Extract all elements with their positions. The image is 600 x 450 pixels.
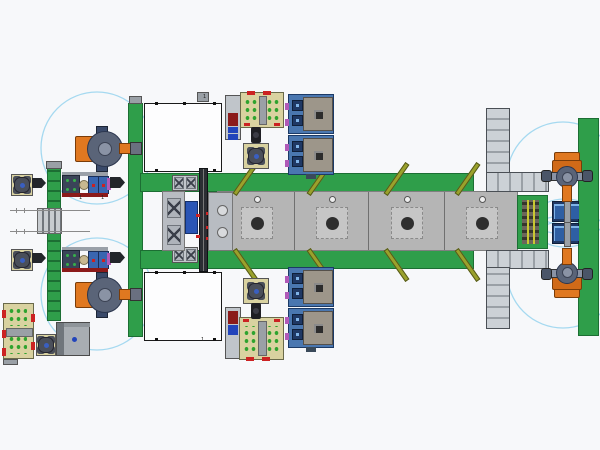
machine-enclosure-bottom: [144, 272, 222, 341]
robot-wrist-core: [98, 288, 112, 302]
machine-connector: [285, 119, 289, 126]
station-fixture-block: [62, 175, 80, 195]
bed-pin: [329, 196, 336, 203]
station-plate-1: [241, 207, 273, 239]
tray-red-tab: [246, 357, 254, 361]
part-nest-grid: [266, 326, 280, 353]
machine-port: [292, 273, 303, 284]
pallet-wheel: [186, 249, 196, 261]
magazine-guide-rail: [533, 200, 535, 244]
transfer-wheel: [167, 198, 181, 218]
machine-port: [292, 156, 303, 167]
tray-footer: [3, 359, 18, 365]
index-disc: [217, 227, 228, 238]
tray-red-tab: [2, 330, 6, 338]
robot-joint: [556, 262, 578, 284]
rotary-actuator: [248, 148, 264, 164]
robot-right-bottom: [546, 250, 586, 298]
rotary-center: [44, 343, 49, 348]
process-machine-2: [288, 135, 334, 175]
tray-red-tab: [31, 314, 35, 322]
rotary-fixture-left-top: [11, 174, 33, 196]
machine-panel: [303, 138, 333, 172]
station-fixture-block: [62, 250, 80, 270]
cad-layout-canvas: 1 1 1 1: [0, 0, 600, 450]
rotary-center: [254, 289, 259, 294]
index-disc: [217, 205, 228, 216]
tray-red-tab: [262, 357, 270, 361]
machine-panel: [303, 97, 333, 131]
rotary-actuator: [248, 283, 264, 299]
pallet-stop-unit-top: [172, 175, 198, 191]
machine-connector: [285, 160, 289, 167]
cabinet-blue-panel: [228, 134, 238, 140]
vertical-ladder-conveyor-left: [47, 163, 61, 321]
tray-red-tab: [243, 319, 249, 322]
dimension-line: [10, 231, 90, 232]
fixture-jaw: [554, 226, 564, 241]
tray-red-tab: [2, 310, 6, 318]
bed-pin: [479, 196, 486, 203]
tray-red-tab: [2, 348, 6, 356]
process-machine-3: [288, 267, 334, 307]
control-cabinet-top: [225, 95, 241, 140]
balloon-label: 1: [201, 338, 204, 343]
tray-red-tab: [274, 319, 280, 322]
rotary-actuator: [14, 252, 30, 268]
roller-conveyor-vertical-bottom: [486, 267, 510, 329]
enclosure-mount-marks: [155, 102, 158, 105]
robot-arm-end: [541, 170, 552, 182]
magazine-slots: [522, 200, 539, 244]
tray-red-tab: [31, 342, 35, 350]
station-bore: [401, 217, 414, 230]
tray-center-bracket: [259, 96, 268, 125]
tooling-fixture-top: [552, 201, 579, 222]
clamp-pad: [92, 184, 95, 187]
machine-foot: [306, 347, 316, 352]
station-plate-4: [466, 207, 498, 239]
part-nest-grid: [8, 307, 27, 325]
machine-connector: [285, 103, 289, 110]
machine-spindle: [314, 151, 323, 160]
rotary-fixture-top-center: [243, 143, 269, 169]
machine-port: [292, 329, 303, 340]
bed-pin: [404, 196, 411, 203]
rotary-actuator: [38, 337, 54, 353]
process-machine-1: [288, 94, 334, 134]
magazine-rack: [517, 195, 548, 249]
rotary-actuator: [14, 177, 30, 193]
tray-red-tab: [274, 123, 280, 126]
bed-section-divider: [294, 192, 295, 250]
kitting-tray-vertical: [3, 303, 34, 359]
robot-joint: [87, 131, 123, 167]
machine-connector: [285, 276, 289, 283]
bed-section-divider: [368, 192, 369, 250]
part-nest-grid: [243, 326, 257, 353]
tray-red-tab: [247, 91, 255, 95]
machine-port: [292, 288, 303, 299]
transfer-frame: [162, 191, 185, 251]
robot-forearm: [562, 248, 572, 265]
magazine-guide-rail: [527, 200, 529, 244]
machine-port: [292, 100, 303, 111]
roller-conveyor-horizontal-top: [486, 172, 549, 192]
robot-arm-end: [582, 170, 593, 182]
part-nest-grid: [266, 98, 280, 120]
machine-panel: [303, 311, 333, 345]
rotary-center: [254, 154, 259, 159]
bed-pin: [254, 196, 261, 203]
locator-pins: [66, 179, 69, 182]
rail-clamp: [196, 235, 200, 238]
machine-connector: [285, 333, 289, 340]
assembly-station-left-bottom: [62, 247, 111, 273]
kitting-tray-top: [240, 92, 284, 128]
robot-gripper: [130, 288, 142, 301]
robot-wrist-core: [98, 142, 112, 156]
enclosure-mount-marks: [155, 271, 158, 274]
clamp-pad: [102, 259, 105, 262]
machine-port: [292, 115, 303, 126]
locator-pins: [66, 254, 69, 257]
station-bore: [326, 217, 339, 230]
gantry-rail: [199, 168, 208, 272]
clamp-pad: [92, 259, 95, 262]
cabinet-red-panel: [228, 311, 238, 324]
station-plate-3: [391, 207, 423, 239]
machine-connector: [285, 292, 289, 299]
station-bore: [251, 217, 264, 230]
part-nest-grid: [8, 335, 27, 353]
balloon-label: 1: [101, 196, 104, 201]
machine-spindle: [314, 324, 323, 333]
conveyor-end-cap: [129, 96, 142, 104]
robot-left-bottom: [74, 272, 140, 316]
box-port: [72, 337, 77, 342]
station-plate-2: [316, 207, 348, 239]
bed-section-divider: [444, 192, 445, 250]
coupling-shaft-bottom: [251, 303, 261, 319]
robot-joint: [87, 277, 123, 313]
coupling-shaft-top: [251, 127, 261, 143]
machine-enclosure-top: [144, 103, 222, 172]
rotary-fixture-bottom-left: [36, 334, 56, 356]
rotary-fixture-left-bottom: [11, 249, 33, 271]
ladder-end-cap: [46, 161, 62, 169]
transfer-bed: [217, 191, 518, 251]
robot-arm-end: [541, 268, 552, 280]
cabinet-red-panel: [228, 113, 238, 126]
fixture-jaw: [554, 204, 564, 219]
machine-port: [292, 314, 303, 325]
box-top-edge: [64, 323, 90, 327]
kitting-tray-bottom: [239, 317, 284, 360]
safety-wall: [578, 118, 599, 336]
roller-conveyor-vertical-top: [486, 108, 510, 174]
robot-forearm: [562, 185, 572, 202]
robot-gripper: [130, 142, 142, 155]
pallet-wheel: [174, 177, 184, 189]
balloon-label: 1: [203, 95, 206, 100]
robot-arm-end: [582, 268, 593, 280]
process-machine-4: [288, 308, 334, 348]
pallet-wheel: [186, 177, 196, 189]
rotary-center: [20, 183, 25, 188]
transfer-wheel: [167, 225, 181, 245]
robot-right-top: [546, 152, 586, 200]
rotary-center: [20, 258, 25, 263]
equipment-box: [56, 322, 90, 356]
rail-clamp: [196, 214, 200, 217]
machine-foot: [306, 174, 316, 179]
box-side-panel: [57, 323, 64, 355]
part-nest-grid: [244, 98, 258, 120]
shuttle-carriage: [185, 201, 198, 234]
tray-red-tab: [244, 123, 250, 126]
clamp-pad: [102, 184, 105, 187]
fixture-shaft: [564, 222, 571, 247]
tray-red-tab: [263, 91, 271, 95]
dimension-line: [10, 210, 90, 211]
machine-spindle: [314, 110, 323, 119]
cabinet-blue-panel: [228, 325, 238, 335]
machine-connector: [285, 317, 289, 324]
tray-center-bracket: [258, 321, 267, 356]
balloon-label: 1: [79, 196, 82, 201]
machine-connector: [285, 144, 289, 151]
station-bore: [476, 217, 489, 230]
robot-left-top: [74, 126, 140, 170]
robot-wrist-core: [562, 172, 573, 183]
cabinet-blue-panel: [228, 127, 238, 133]
rotary-fixture-bottom-center: [243, 278, 269, 304]
robot-wrist-core: [562, 268, 573, 279]
machine-spindle: [314, 283, 323, 292]
tray-center-bracket: [6, 328, 33, 337]
machine-panel: [303, 270, 333, 304]
tooling-fixture-bottom: [552, 223, 579, 244]
machine-port: [292, 141, 303, 152]
transfer-plate-right: [208, 192, 233, 251]
